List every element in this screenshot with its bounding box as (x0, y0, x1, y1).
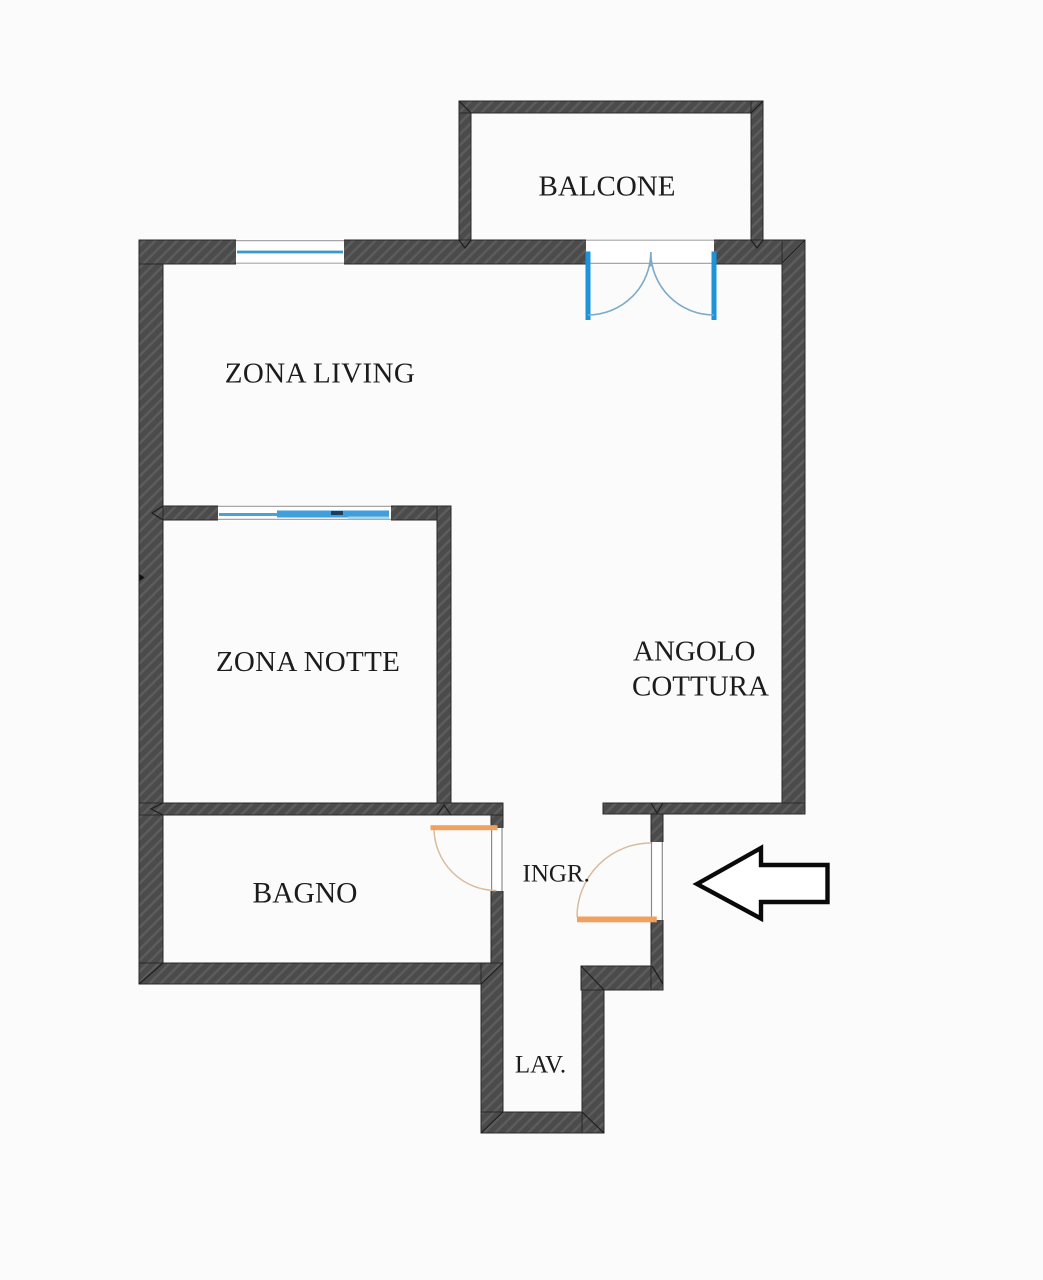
svg-text:LAV.: LAV. (515, 1052, 566, 1079)
svg-text:BAGNO: BAGNO (253, 878, 358, 910)
svg-text:ZONA LIVING: ZONA LIVING (225, 358, 415, 390)
svg-text:ANGOLO: ANGOLO (633, 636, 755, 668)
svg-text:BALCONE: BALCONE (539, 171, 676, 203)
svg-text:INGR.: INGR. (523, 861, 590, 888)
svg-text:COTTURA: COTTURA (632, 671, 769, 703)
svg-text:ZONA NOTTE: ZONA NOTTE (216, 646, 400, 678)
